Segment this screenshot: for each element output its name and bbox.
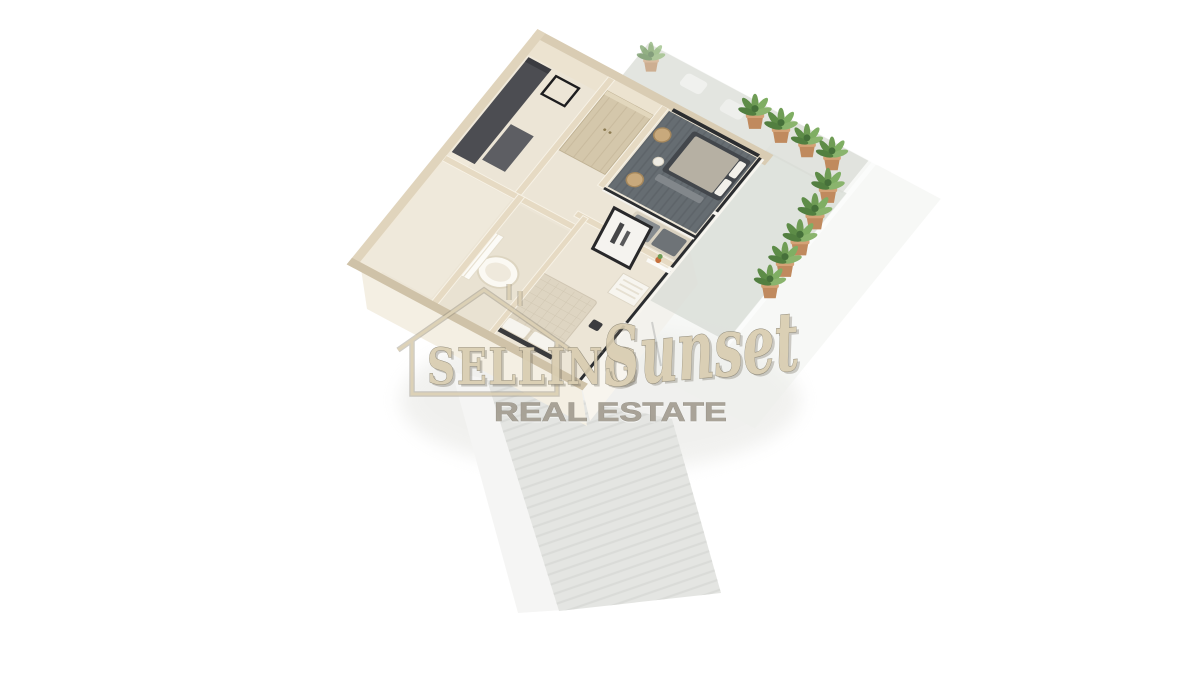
floorplan-page: SELLING SELLING Sunset Sunset REAL ESTAT…: [0, 0, 1200, 675]
watermark-sunset-group: Sunset Sunset: [599, 293, 805, 408]
watermark-tagline: REAL ESTATE: [494, 397, 727, 427]
watermark-sunset: Sunset: [599, 294, 803, 407]
floorplan-svg: SELLING SELLING Sunset Sunset REAL ESTAT…: [0, 0, 1200, 675]
